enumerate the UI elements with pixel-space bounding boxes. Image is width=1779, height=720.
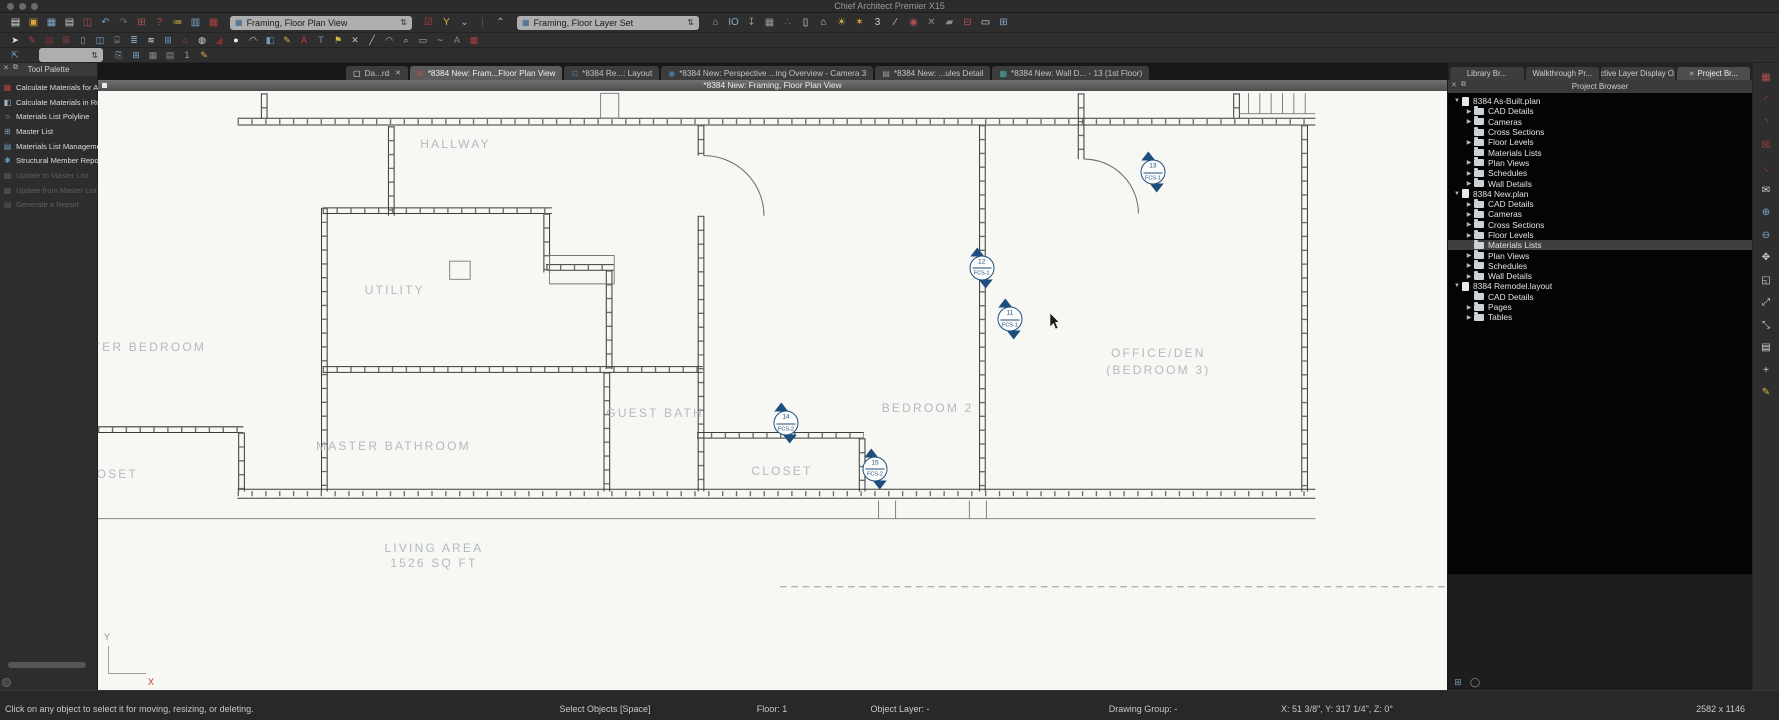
- toolbar-row-2: ➤✎▤☒▯◫⌸≣≋⊞⌂◍◢●◠◧✎AT⚑✕╱◠⌕▭~A▦: [0, 33, 1779, 48]
- export-dialog-icon[interactable]: ◫: [80, 16, 95, 30]
- tree-item-schedules[interactable]: ▶Schedules: [1448, 168, 1752, 178]
- panel-grid-icon[interactable]: ⊞: [1452, 675, 1464, 689]
- panel-lower-area: [1448, 574, 1752, 674]
- tree-item-label: Pages: [1488, 302, 1512, 312]
- plan-file-icon: [1462, 189, 1469, 198]
- expand-arrow-icon[interactable]: ▶: [1465, 211, 1473, 218]
- chevron-down-icon[interactable]: ⌄: [457, 16, 472, 30]
- marker-number: 15: [863, 459, 888, 466]
- tree-item-label: Materials Lists: [1488, 148, 1542, 158]
- marker-code: FCS-2: [773, 426, 798, 432]
- tree-item-cameras[interactable]: ▶Cameras: [1448, 209, 1752, 219]
- panel-tab-close-icon[interactable]: ✕: [1689, 70, 1695, 78]
- flag-tool-icon[interactable]: ⚑: [331, 34, 345, 46]
- tree-item-label: Floor Levels: [1488, 230, 1534, 240]
- chevron-up-icon[interactable]: ⌃: [493, 16, 508, 30]
- section-marker-14[interactable]: 14FCS-2: [773, 411, 798, 436]
- palette-item-master-list[interactable]: ⊞Master List: [0, 124, 97, 139]
- room-label-master-bedroom: MASTER BEDROOM: [98, 340, 206, 354]
- tree-item-label: Plan Views: [1488, 158, 1529, 168]
- materials-management-icon: ▤: [2, 142, 13, 151]
- update-from-master-icon: ▦: [2, 186, 13, 195]
- project-browser-panel: Library Br...Walkthrough Pr...Active Lay…: [1447, 63, 1752, 690]
- building-icon[interactable]: ▦: [762, 16, 777, 30]
- framing-x-icon[interactable]: ☒: [59, 34, 73, 46]
- undo-icon[interactable]: ↶: [98, 16, 113, 30]
- marker-code: FCS-1: [969, 271, 994, 277]
- folder-icon: [1474, 221, 1484, 228]
- folder-icon: [1474, 252, 1484, 259]
- export-strip-icon[interactable]: ✎: [1758, 386, 1774, 399]
- crosshair-strip-icon[interactable]: +: [1758, 364, 1774, 377]
- palette-item-label: Materials List Polyline: [16, 112, 89, 121]
- plan-file-icon: [1462, 282, 1469, 291]
- toolbar-group-edit: ⇱: [8, 49, 22, 61]
- light-on-icon[interactable]: ☀: [834, 16, 849, 30]
- generate-report-icon: ▤: [2, 200, 13, 209]
- save-icon[interactable]: ▦: [44, 16, 59, 30]
- palette-item-label: Update from Master List: [16, 186, 97, 195]
- status-bar: Click on any object to select it for mov…: [0, 690, 1779, 720]
- tree-item-wall-details[interactable]: ▶Wall Details: [1448, 178, 1752, 188]
- expand-arrow-icon[interactable]: ▶: [1465, 118, 1473, 125]
- expand-arrow-icon[interactable]: ▶: [1465, 170, 1473, 177]
- palette-item-label: Calculate Materials in Room: [16, 98, 111, 107]
- dashboard-doc-icon: ▢: [353, 69, 361, 78]
- tree-item-schedules[interactable]: ▶Schedules: [1448, 261, 1752, 271]
- tree-item-floor-levels[interactable]: ▶Floor Levels: [1448, 137, 1752, 147]
- status-object-layer: Object Layer: -: [870, 704, 929, 714]
- marker-number: 11: [997, 310, 1022, 317]
- one-icon[interactable]: 1: [180, 49, 194, 61]
- status-floor: Floor: 1: [757, 704, 788, 714]
- window-titlebar: Chief Architect Premier X15: [0, 0, 1779, 13]
- plan-door-arcs: [704, 156, 1139, 216]
- tree-item-cameras[interactable]: ▶Cameras: [1448, 117, 1752, 127]
- folder-icon: [1474, 118, 1484, 125]
- tree-item-label: Tables: [1488, 312, 1512, 322]
- layout-tab-icon: ⊡: [571, 69, 578, 78]
- walkthrough-icon[interactable]: ∴: [780, 16, 795, 30]
- collapse-arrow-icon[interactable]: ▼: [1453, 191, 1461, 197]
- render-camera-icon[interactable]: ◉: [906, 16, 921, 30]
- palette-item-materials-list-polyline[interactable]: ○Materials List Polyline: [0, 109, 97, 124]
- marquee-tool-icon[interactable]: ▭: [416, 34, 430, 46]
- document-tab-da-rd[interactable]: ▢Da...rd✕: [346, 66, 408, 80]
- palette-item-materials-list-management[interactable]: ▤Materials List Management: [0, 139, 97, 154]
- marker-arrow-down-icon: [783, 435, 797, 444]
- document-tab-8384-re-layout[interactable]: ⊡*8384 Re...: Layout: [564, 66, 659, 80]
- marker-divider: [1143, 172, 1162, 173]
- pan-strip-icon[interactable]: ✥: [1758, 251, 1774, 264]
- small-dropdown[interactable]: ⇅: [39, 48, 103, 62]
- report-edit-icon[interactable]: ✎: [197, 49, 211, 61]
- folder-icon: [1474, 170, 1484, 177]
- window-title: Chief Architect Premier X15: [0, 1, 1779, 11]
- tree-item-materials-lists[interactable]: Materials Lists: [1448, 147, 1752, 157]
- tree-root-8384-as-built-plan[interactable]: ▼8384 As-Built.plan: [1448, 96, 1752, 106]
- folder-icon: [1474, 293, 1484, 300]
- transform-replicate-icon[interactable]: ⇱: [8, 49, 22, 61]
- tree-item-label: Schedules: [1488, 261, 1527, 271]
- tree-item-label: CAD Details: [1488, 292, 1534, 302]
- tool-palette-items: ▦Calculate Materials for All Floors◧Calc…: [0, 76, 97, 212]
- materials-list-icon[interactable]: ≔: [170, 16, 185, 30]
- layer-set-dropdown-value: Framing, Floor Layer Set: [534, 18, 634, 28]
- print-icon[interactable]: ▤: [62, 16, 77, 30]
- cube-tool-icon[interactable]: ◧: [263, 34, 277, 46]
- folder-icon: [1474, 262, 1484, 269]
- roof-tool-icon[interactable]: ◢: [212, 34, 226, 46]
- light-burst-icon[interactable]: ✶: [852, 16, 867, 30]
- tab-label: *8384 New: Fram...Floor Plan View: [428, 69, 556, 78]
- text-red-icon[interactable]: A: [297, 34, 311, 46]
- tool-palette-title: Tool Palette: [0, 65, 97, 74]
- material-blob-icon[interactable]: ●: [229, 34, 243, 46]
- tree-item-cross-sections[interactable]: Cross Sections: [1448, 127, 1752, 137]
- view-title-bar: *8384 New: Framing, Floor Plan View: [98, 80, 1447, 91]
- panel-tab-label: Project Br...: [1698, 69, 1738, 78]
- tile-windows-icon[interactable]: ⊞: [996, 16, 1011, 30]
- side-panel-tabs: Library Br...Walkthrough Pr...Active Lay…: [1448, 63, 1752, 80]
- folder-icon: [1474, 273, 1484, 280]
- tree-item-label: CAD Details: [1488, 106, 1534, 116]
- tree-item-materials-lists[interactable]: Materials Lists: [1448, 240, 1752, 250]
- arc-tool-icon[interactable]: ◠: [382, 34, 396, 46]
- annotate-tool-icon[interactable]: A: [450, 34, 464, 46]
- marker-code: FCS-1: [997, 322, 1022, 328]
- tree-item-label: Materials Lists: [1488, 240, 1542, 250]
- y-axis-label: Y: [104, 632, 110, 642]
- print-preview-strip-icon[interactable]: ▤: [1758, 341, 1774, 354]
- doc-delete-strip-icon[interactable]: ☒: [1758, 139, 1774, 152]
- palette-item-structural-member-reporting[interactable]: ✱Structural Member Reporting: [0, 153, 97, 168]
- axis-indicator: Y X: [102, 634, 154, 682]
- camera-tab-icon: ◉: [668, 69, 675, 78]
- folder-icon: [1474, 201, 1484, 208]
- tree-item-pages[interactable]: ▶Pages: [1448, 302, 1752, 312]
- floor-plan-drawing: [98, 91, 1447, 690]
- framing-tool-icon[interactable]: ✎: [25, 34, 39, 46]
- panel-circle-icon[interactable]: ◯: [1469, 675, 1481, 689]
- column-icon[interactable]: ▯: [798, 16, 813, 30]
- room-label-guest-bath: GUEST BATH: [606, 406, 704, 420]
- master-list-icon: ⊞: [2, 127, 13, 136]
- document-tab-8384-new-fram-floor-plan-view[interactable]: ⊞*8384 New: Fram...Floor Plan View: [410, 66, 562, 80]
- layout-pages-icon[interactable]: ⊞: [134, 16, 149, 30]
- marker-arrow-down-icon: [1150, 184, 1164, 193]
- folder-icon: [1474, 242, 1484, 249]
- x-axis-label: X: [148, 677, 154, 687]
- list-tool-icon[interactable]: ≣: [127, 34, 141, 46]
- status-hint: Click on any object to select it for mov…: [5, 704, 254, 714]
- awning-tool-icon[interactable]: ◠: [246, 34, 260, 46]
- redo-icon[interactable]: ↷: [116, 16, 131, 30]
- tree-root-8384-remodel-layout[interactable]: ▼8384 Remodel.layout: [1448, 281, 1752, 291]
- reference-display-icon[interactable]: ⌂: [708, 16, 723, 30]
- copy-icon[interactable]: ⎘: [112, 49, 126, 61]
- arc-strip-2-icon[interactable]: ◝: [1758, 116, 1774, 129]
- materials-polyline-icon: ○: [2, 112, 13, 121]
- room-label-master-bathroom: MASTER BATHROOM: [316, 439, 471, 453]
- expand-arrow-icon[interactable]: ▶: [1465, 232, 1473, 239]
- tree-item-cad-details[interactable]: ▶CAD Details: [1448, 199, 1752, 209]
- toolbar-divider[interactable]: |: [475, 16, 490, 30]
- side-panel-tab-active-layer-display-o[interactable]: Active Layer Display O...: [1601, 67, 1675, 80]
- section-marker-15[interactable]: 15FCS-2: [863, 456, 888, 481]
- collapse-arrow-icon[interactable]: ▼: [1453, 98, 1461, 104]
- plan-detail-lines: [98, 93, 1315, 518]
- open-plan-icon[interactable]: ▣: [26, 16, 41, 30]
- expand-arrow-icon[interactable]: ▶: [1465, 221, 1473, 228]
- side-panel-tab-library-br[interactable]: Library Br...: [1450, 67, 1524, 80]
- status-drawing-group: Drawing Group: -: [1109, 704, 1178, 714]
- window-tool-icon[interactable]: ⊞: [161, 34, 175, 46]
- floor-plan-canvas[interactable]: HALLWAYUTILITYMASTER BEDROOMGUEST BATHMA…: [98, 91, 1447, 690]
- section-marker-13[interactable]: 13FCS-1: [1140, 160, 1165, 185]
- marker-arrow-down-icon: [979, 279, 993, 288]
- view-title-square-icon[interactable]: [102, 83, 107, 88]
- column-tool-icon[interactable]: ▯: [76, 34, 90, 46]
- zoom-tool-icon[interactable]: ⌕: [399, 34, 413, 46]
- room-label-bedroom-2: BEDROOM 2: [882, 401, 974, 415]
- help-icon[interactable]: ?: [152, 16, 167, 30]
- tree-item-cross-sections[interactable]: ▶Cross Sections: [1448, 220, 1752, 230]
- tree-item-label: Cameras: [1488, 209, 1522, 219]
- room-label-living-area: LIVING AREA: [384, 541, 483, 555]
- expand-arrow-icon[interactable]: ▶: [1465, 159, 1473, 166]
- panel-tab-label: Library Br...: [1467, 69, 1507, 78]
- tree-item-wall-details[interactable]: ▶Wall Details: [1448, 271, 1752, 281]
- panel-tab-label: Active Layer Display O...: [1601, 69, 1675, 78]
- zoom-out-strip-icon[interactable]: ⊖: [1758, 229, 1774, 242]
- plan-view-dropdown[interactable]: ▦ Framing, Floor Plan View ⇅: [230, 16, 412, 30]
- tree-item-label: Floor Levels: [1488, 137, 1534, 147]
- folder-icon: [1474, 159, 1484, 166]
- framing-strip-icon[interactable]: ▦: [1758, 71, 1774, 84]
- plan-view-dropdown-icon: ▦: [235, 18, 243, 27]
- palette-item-label: Update to Master List: [16, 171, 88, 180]
- document-tab-8384-new-wall-d-13-1st-floor[interactable]: ▦*8384 New: Wall D... - 13 (1st Floor): [992, 66, 1149, 80]
- tree-item-cad-details[interactable]: CAD Details: [1448, 292, 1752, 302]
- view-title: *8384 New: Framing, Floor Plan View: [703, 80, 841, 90]
- plan-stud-ticks: [98, 93, 1315, 493]
- tab-close-icon[interactable]: ✕: [395, 69, 401, 77]
- tree-root-label: 8384 Remodel.layout: [1473, 281, 1552, 291]
- palette-item-label: Master List: [16, 127, 53, 136]
- home-view-icon[interactable]: ⌂: [816, 16, 831, 30]
- folder-icon: [1474, 149, 1484, 156]
- tree-item-label: CAD Details: [1488, 199, 1534, 209]
- document-tab-8384-new-perspective-ing-overview-camera-3[interactable]: ◉*8384 New: Perspective ...ing Overview …: [661, 66, 873, 80]
- three-d-icon[interactable]: 3: [870, 16, 885, 30]
- folder-icon: [1474, 304, 1484, 311]
- import-tray-icon[interactable]: ↧: [744, 16, 759, 30]
- tree-item-label: Wall Details: [1488, 179, 1532, 189]
- grid-b-icon[interactable]: ▤: [163, 49, 177, 61]
- toolbar-group-reports: ⎘⊞▦▤1✎: [112, 49, 211, 61]
- tab-label: *8384 New: ...ules Detail: [894, 69, 984, 78]
- side-panel-tab-project-br[interactable]: ✕Project Br...: [1677, 67, 1751, 80]
- tree-item-label: Cross Sections: [1488, 220, 1544, 230]
- tree-root-label: 8384 As-Built.plan: [1473, 96, 1541, 106]
- expand-arrow-icon[interactable]: ▶: [1465, 139, 1473, 146]
- dropdown-stepper-icon[interactable]: ⇅: [400, 18, 407, 27]
- tree-item-label: Wall Details: [1488, 271, 1532, 281]
- detail-tab-icon: ▤: [882, 69, 890, 78]
- room-label-bedroom-3: (BEDROOM 3): [1106, 363, 1210, 377]
- plan-file-icon: [1462, 97, 1469, 106]
- eraser-icon[interactable]: ▰: [942, 16, 957, 30]
- toolbar-row-1: ▤▣▦▤◫↶↷⊞?≔▥▦ ▦ Framing, Floor Plan View …: [0, 13, 1779, 33]
- palette-item-label: Materials List Management: [16, 142, 107, 151]
- table-icon[interactable]: ⊞: [129, 49, 143, 61]
- status-resolution: 2582 x 1146: [1696, 704, 1745, 714]
- palette-item-label: Generate a Report: [16, 200, 79, 209]
- section-line-icon[interactable]: ∕: [888, 16, 903, 30]
- arc-strip-1-icon[interactable]: ◜: [1758, 94, 1774, 107]
- palette-item-update-from-master-list: ▦Update from Master List: [0, 183, 97, 198]
- toolbar-group-settings: ☑Y⌄|⌃: [421, 16, 508, 30]
- tree-root-label: 8384 New.plan: [1473, 189, 1528, 199]
- layer-set-dropdown[interactable]: ▦ Framing, Floor Layer Set ⇅: [517, 16, 699, 30]
- tree-item-plan-views[interactable]: ▶Plan Views: [1448, 250, 1752, 260]
- tree-root-8384-new-plan[interactable]: ▼8384 New.plan: [1448, 189, 1752, 199]
- room-label-1526-sq-ft: 1526 SQ FT: [390, 556, 477, 570]
- toolbar-row-3: ⇱ ⇅ ⎘⊞▦▤1✎: [0, 48, 1779, 63]
- shrink-strip-icon[interactable]: ⤡: [1758, 319, 1774, 332]
- marker-divider: [776, 423, 795, 424]
- panel-footer-icons: ⊞◯: [1448, 674, 1752, 690]
- document-tab-strip: ▢Da...rd✕⊞*8384 New: Fram...Floor Plan V…: [98, 63, 1447, 80]
- side-panel-tab-walkthrough-pr[interactable]: Walkthrough Pr...: [1526, 67, 1600, 80]
- update-to-master-icon: ▦: [2, 171, 13, 180]
- folder-icon: [1474, 314, 1484, 321]
- palette-item-calculate-materials-in-room[interactable]: ◧Calculate Materials in Room: [0, 95, 97, 110]
- house-tool-icon[interactable]: ⌂: [178, 34, 192, 46]
- room-label-hallway: HALLWAY: [420, 137, 491, 151]
- door-tool-icon[interactable]: ◫: [93, 34, 107, 46]
- schedule-grid-icon[interactable]: ⊟: [960, 16, 975, 30]
- picture-icon[interactable]: ▭: [978, 16, 993, 30]
- ruby-report-icon[interactable]: ▦: [206, 16, 221, 30]
- marker-divider: [866, 469, 885, 470]
- layers-icon[interactable]: ≋: [144, 34, 158, 46]
- section-marker-12[interactable]: 12FCS-1: [969, 255, 994, 280]
- tree-item-label: Cameras: [1488, 117, 1522, 127]
- layer-set-dropdown-icon: ▦: [522, 18, 530, 27]
- palette-item-calculate-materials-for-all-floors[interactable]: ▦Calculate Materials for All Floors: [0, 80, 97, 95]
- pencil-tool-icon[interactable]: ✎: [280, 34, 294, 46]
- expand-strip-icon[interactable]: ⤢: [1758, 296, 1774, 309]
- calc-materials-all-floors-icon: ▦: [2, 83, 13, 92]
- panel-tab-label: Walkthrough Pr...: [1532, 69, 1592, 78]
- lamp-tool-icon[interactable]: ◍: [195, 34, 209, 46]
- wall-tool-icon[interactable]: ▤: [42, 34, 56, 46]
- io-display-icon[interactable]: IO: [726, 16, 741, 30]
- room-label-office-den: OFFICE/DEN: [1111, 346, 1206, 360]
- expand-arrow-icon[interactable]: ▶: [1465, 273, 1473, 280]
- document-tab-8384-new-ules-detail[interactable]: ▤*8384 New: ...ules Detail: [875, 66, 990, 80]
- select-arrow-icon[interactable]: ➤: [8, 34, 22, 46]
- expand-arrow-icon[interactable]: ▶: [1465, 108, 1473, 115]
- marker-number: 13: [1140, 163, 1165, 170]
- tool-palette-header: ✕ ⧉ Tool Palette: [0, 63, 97, 76]
- comment-strip-icon[interactable]: ✉: [1758, 184, 1774, 197]
- toolbar-group-file: ▤▣▦▤◫↶↷⊞?≔▥▦: [8, 16, 221, 30]
- room-label-closet: CLOSET: [98, 467, 138, 481]
- tree-item-floor-levels[interactable]: ▶Floor Levels: [1448, 230, 1752, 240]
- project-browser-tree: ▼8384 As-Built.plan▶CAD Details▶CamerasC…: [1448, 93, 1752, 574]
- folder-icon: [1474, 232, 1484, 239]
- right-side-toolbar: ▦◜◝☒◟✉⊕⊖✥◱⤢⤡▤+✎: [1752, 63, 1779, 690]
- marker-code: FCS-1: [1140, 175, 1165, 181]
- delete-view-icon[interactable]: ✕: [924, 16, 939, 30]
- tree-item-label: Plan Views: [1488, 251, 1529, 261]
- expand-arrow-icon[interactable]: ▶: [1465, 180, 1473, 187]
- expand-arrow-icon[interactable]: ▶: [1465, 262, 1473, 269]
- marker-divider: [972, 268, 991, 269]
- section-marker-11[interactable]: 11FCS-1: [997, 307, 1022, 332]
- tab-label: *8384 New: Perspective ...ing Overview -…: [679, 69, 866, 78]
- cabinet-tool-icon[interactable]: ⌸: [110, 34, 124, 46]
- palette-scrollbar[interactable]: [8, 662, 86, 668]
- marker-arrow-down-icon: [872, 480, 886, 489]
- expand-arrow-icon[interactable]: ▶: [1465, 252, 1473, 259]
- expand-arrow-icon[interactable]: ▶: [1465, 201, 1473, 208]
- folder-icon: [1474, 211, 1484, 218]
- components-icon[interactable]: ▥: [188, 16, 203, 30]
- collapse-arrow-icon[interactable]: ▼: [1453, 283, 1461, 289]
- marker-code: FCS-2: [863, 472, 888, 478]
- palette-item-generate-a-report: ▤Generate a Report: [0, 198, 97, 213]
- dropdown-stepper-icon[interactable]: ⇅: [687, 18, 694, 27]
- toolbar-group-tools: ➤✎▤☒▯◫⌸≣≋⊞⌂◍◢●◠◧✎AT⚑✕╱◠⌕▭~A▦: [8, 34, 481, 46]
- tab-label: Da...rd: [365, 69, 390, 78]
- text-blue-icon[interactable]: T: [314, 34, 328, 46]
- zoom-in-strip-icon[interactable]: ⊕: [1758, 206, 1774, 219]
- project-browser-title: Project Browser: [1448, 82, 1752, 91]
- plan-check-icon[interactable]: ☑: [421, 16, 436, 30]
- grid-a-icon[interactable]: ▦: [146, 49, 160, 61]
- arc-strip-3-icon[interactable]: ◟: [1758, 161, 1774, 174]
- delete-tool-icon[interactable]: ✕: [348, 34, 362, 46]
- marker-arrow-down-icon: [1007, 331, 1021, 340]
- folder-icon: [1474, 108, 1484, 115]
- folder-icon: [1474, 129, 1484, 136]
- toolbar-group-views: ⌂IO↧▦∴▯⌂☀✶3∕◉✕▰⊟▭⊞: [708, 16, 1011, 30]
- line-tool-icon[interactable]: ╱: [365, 34, 379, 46]
- tab-label: *8384 Re...: Layout: [582, 69, 652, 78]
- expand-arrow-icon[interactable]: ▶: [1465, 304, 1473, 311]
- dropdown-stepper-icon[interactable]: ⇅: [91, 51, 98, 60]
- tree-item-cad-details[interactable]: ▶CAD Details: [1448, 106, 1752, 116]
- status-mode: Select Objects [Space]: [559, 704, 650, 714]
- tree-item-label: Cross Sections: [1488, 127, 1544, 137]
- settings-wrench-icon[interactable]: Y: [439, 16, 454, 30]
- polyline-tool-icon[interactable]: ~: [433, 34, 447, 46]
- mouse-cursor: [1050, 313, 1062, 331]
- tree-item-plan-views[interactable]: ▶Plan Views: [1448, 158, 1752, 168]
- calc-materials-room-icon: ◧: [2, 98, 13, 107]
- fill-window-strip-icon[interactable]: ◱: [1758, 274, 1774, 287]
- new-plan-icon[interactable]: ▤: [8, 16, 23, 30]
- cad-detail-icon[interactable]: ▦: [467, 34, 481, 46]
- expand-arrow-icon[interactable]: ▶: [1465, 314, 1473, 321]
- palette-corner-button[interactable]: [2, 678, 11, 687]
- tree-item-tables[interactable]: ▶Tables: [1448, 312, 1752, 322]
- room-label-utility: UTILITY: [365, 283, 425, 297]
